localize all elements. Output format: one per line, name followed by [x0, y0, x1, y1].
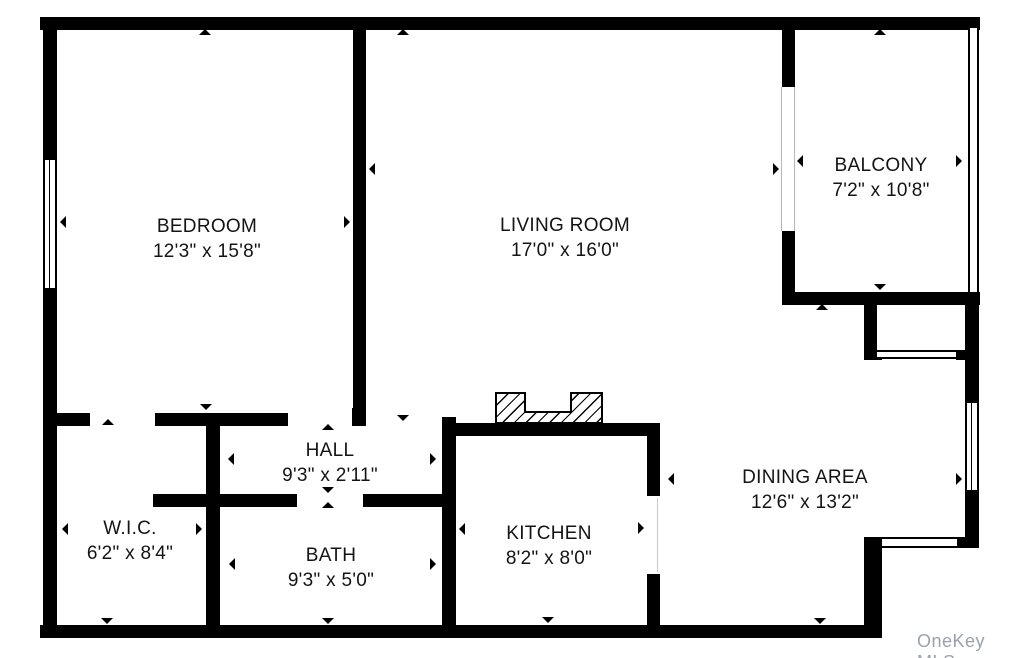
- dining-window-right: [965, 403, 979, 490]
- bedroom-window: [43, 155, 57, 293]
- marker-up-icon: [322, 424, 334, 430]
- alcove-window: [877, 350, 956, 359]
- marker-left-icon: [62, 523, 68, 535]
- room-label-hall: HALL 9'3" x 2'11": [282, 438, 378, 488]
- marker-up-icon: [397, 29, 409, 35]
- room-label-wic: W.I.C. 6'2" x 8'4": [87, 516, 173, 566]
- wall-dining-step: [864, 537, 882, 638]
- wall-bedroom-bottom-left: [43, 413, 90, 426]
- wall-hall-bath-left: [153, 494, 297, 507]
- room-label-balcony: BALCONY 7'2" x 10'8": [832, 153, 929, 203]
- room-label-living-room: LIVING ROOM 17'0" x 16'0": [500, 213, 630, 263]
- kitchen-door-opening: [657, 498, 658, 572]
- wall-balcony-divider-lower: [782, 231, 795, 292]
- marker-left-icon: [228, 453, 234, 465]
- marker-down-icon: [322, 618, 334, 624]
- marker-left-icon: [797, 155, 803, 167]
- room-label-dining-area: DINING AREA 12'6" x 13'2": [742, 465, 868, 515]
- marker-up-icon: [102, 419, 114, 425]
- marker-right-icon: [956, 473, 962, 485]
- marker-left-icon: [60, 216, 66, 228]
- wall-bedroom-living-divider: [353, 30, 366, 424]
- wall-kitchen-left: [442, 417, 456, 638]
- wall-exterior-left-upper: [43, 17, 57, 155]
- marker-up-icon: [199, 29, 211, 35]
- marker-down-icon: [101, 618, 113, 624]
- wall-exterior-right-upper: [965, 305, 979, 403]
- wall-divider-foot: [352, 408, 366, 426]
- floor-plan: BEDROOM 12'3" x 15'8" LIVING ROOM 17'0" …: [0, 0, 1024, 658]
- wall-exterior-left-lower: [43, 293, 57, 638]
- marker-down-icon: [200, 404, 212, 410]
- marker-right-icon: [344, 216, 350, 228]
- room-label-bath: BATH 9'3" x 5'0": [288, 543, 374, 593]
- wall-balcony-divider-upper: [782, 30, 795, 87]
- kitchen-counter-sink: [524, 392, 572, 413]
- marker-left-icon: [229, 558, 235, 570]
- balcony-railing: [968, 28, 979, 292]
- marker-right-icon: [196, 523, 202, 535]
- wall-wic-bath-divider: [206, 413, 220, 638]
- wall-exterior-top: [40, 17, 980, 30]
- marker-up-icon: [816, 304, 828, 310]
- marker-down-icon: [874, 284, 886, 290]
- marker-up-icon: [322, 502, 334, 508]
- onekey-mls-watermark: OneKey MLS: [917, 631, 1024, 658]
- wall-bedroom-bottom-right: [155, 413, 288, 426]
- wall-alcove-right-nub: [956, 350, 966, 360]
- room-label-kitchen: KITCHEN 8'2" x 8'0": [506, 521, 592, 571]
- marker-right-icon: [773, 163, 779, 175]
- wall-kitchen-right-lower: [647, 574, 660, 638]
- dining-window-bottom: [882, 537, 957, 548]
- wall-kitchen-right-upper: [647, 423, 660, 496]
- marker-down-icon: [322, 487, 334, 493]
- marker-left-icon: [668, 473, 674, 485]
- wall-balcony-bottom: [782, 292, 980, 305]
- marker-right-icon: [430, 453, 436, 465]
- wall-alcove-left: [864, 305, 877, 355]
- room-label-bedroom: BEDROOM 12'3" x 15'8": [153, 214, 261, 264]
- wall-corner-block-bottom-right: [957, 537, 979, 548]
- marker-down-icon: [397, 415, 409, 421]
- marker-left-icon: [369, 163, 375, 175]
- marker-left-icon: [459, 523, 465, 535]
- marker-right-icon: [430, 558, 436, 570]
- marker-right-icon: [956, 155, 962, 167]
- marker-down-icon: [814, 618, 826, 624]
- marker-up-icon: [874, 29, 886, 35]
- marker-up-icon: [542, 430, 554, 436]
- marker-down-icon: [542, 617, 554, 623]
- balcony-door-opening: [781, 87, 795, 231]
- marker-right-icon: [638, 522, 644, 534]
- wall-exterior-bottom: [40, 625, 882, 638]
